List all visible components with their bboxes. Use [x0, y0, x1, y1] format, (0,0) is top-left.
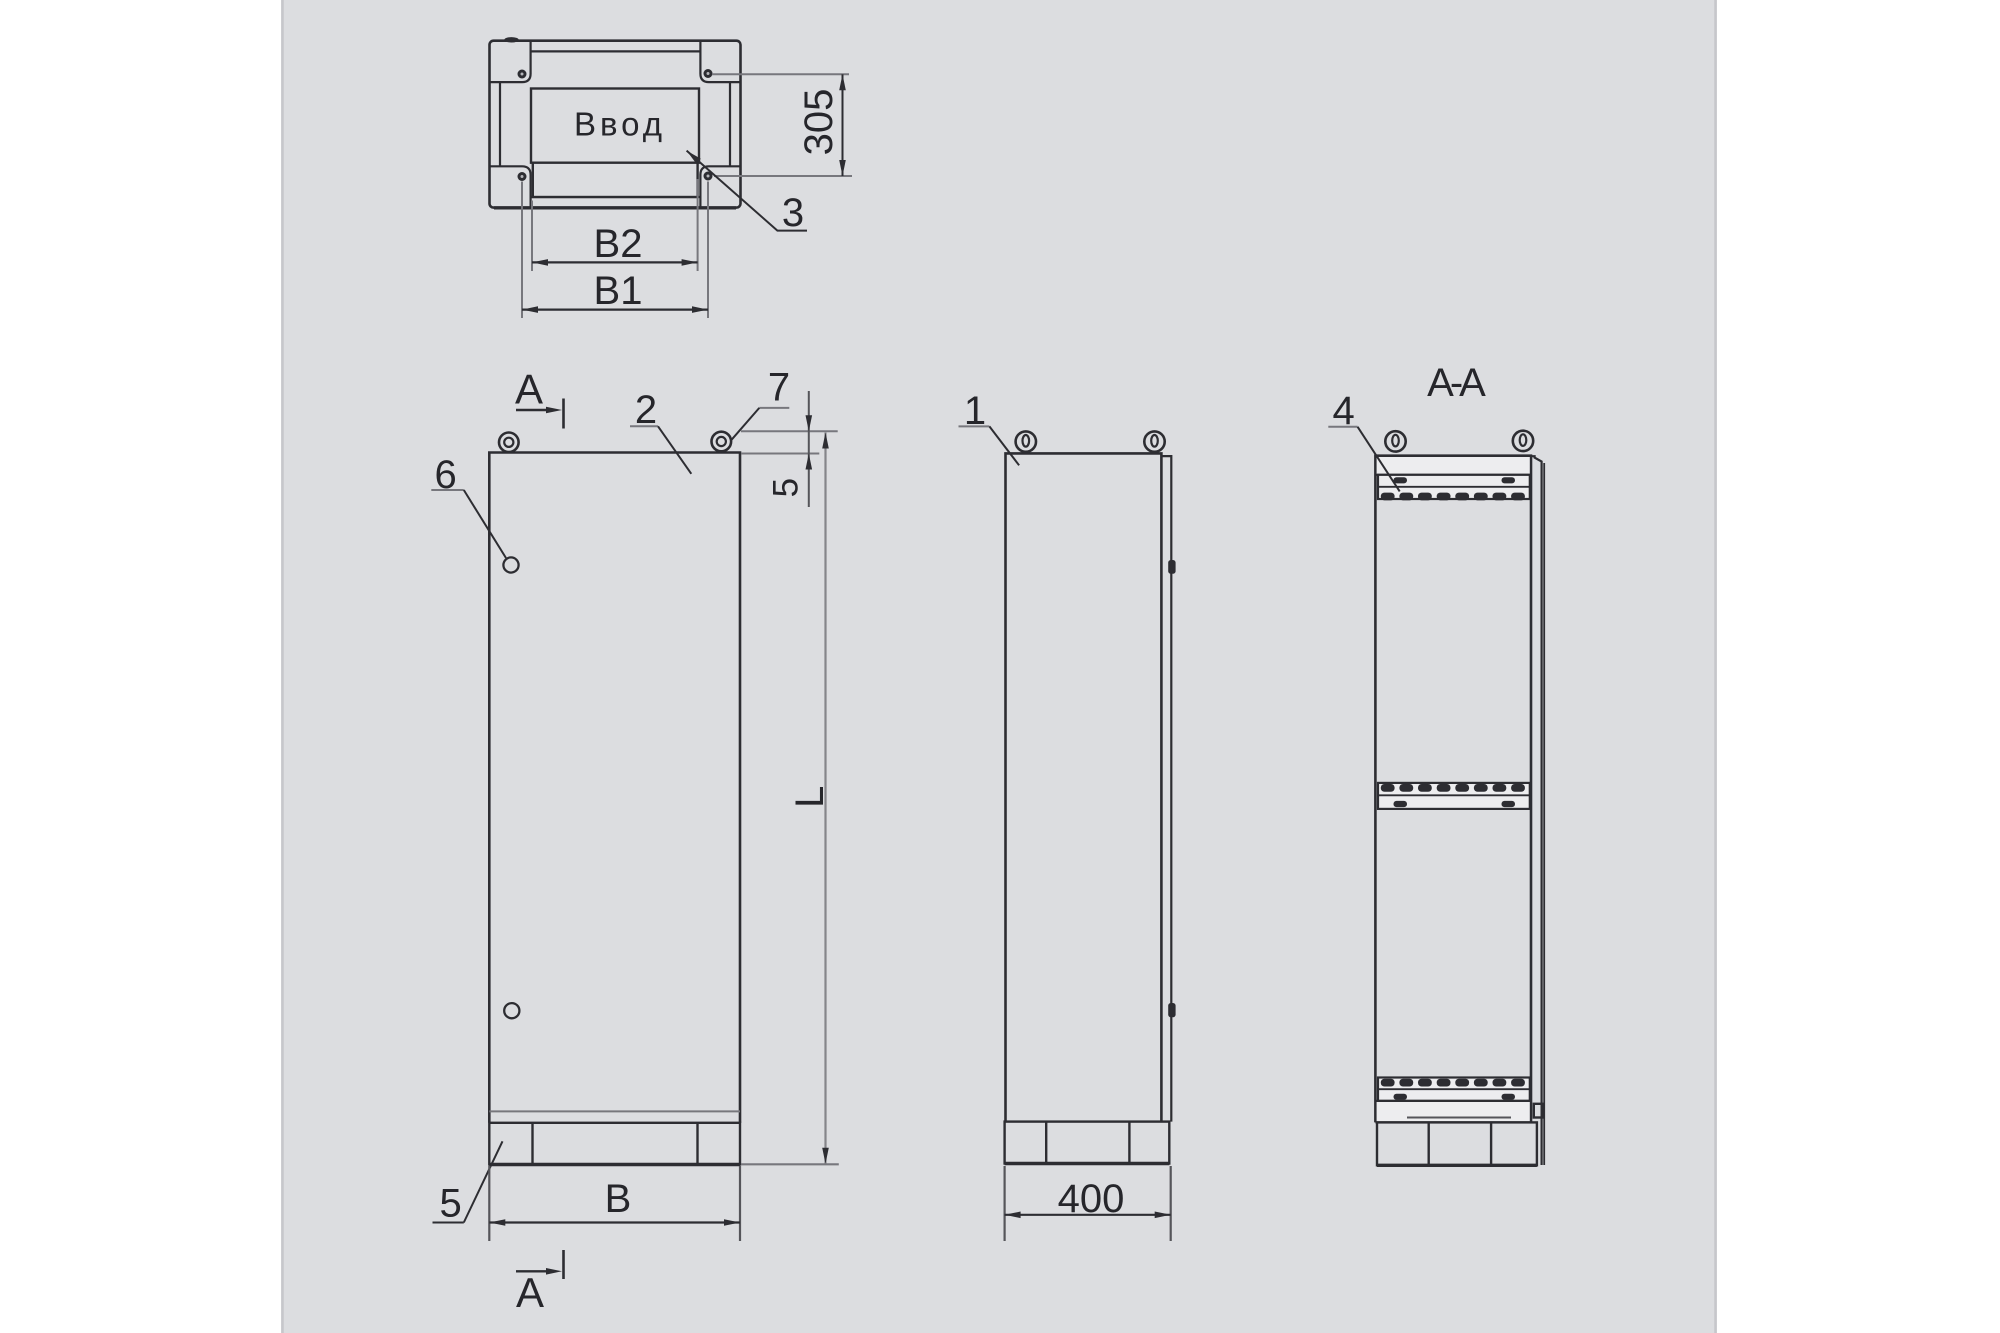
- svg-text:Ввод: Ввод: [574, 106, 666, 143]
- svg-text:6: 6: [434, 453, 456, 497]
- svg-text:B1: B1: [594, 269, 643, 313]
- svg-text:2: 2: [635, 388, 657, 432]
- svg-text:400: 400: [1058, 1177, 1125, 1221]
- svg-text:A: A: [516, 1269, 544, 1316]
- svg-text:A: A: [515, 366, 543, 413]
- svg-text:3: 3: [782, 191, 804, 235]
- svg-text:A-A: A-A: [1427, 361, 1486, 405]
- svg-text:7: 7: [768, 366, 790, 410]
- svg-text:4: 4: [1332, 389, 1354, 433]
- svg-text:B: B: [605, 1177, 632, 1221]
- svg-text:5: 5: [439, 1182, 461, 1226]
- svg-text:L: L: [788, 786, 832, 808]
- svg-text:1: 1: [964, 389, 986, 433]
- svg-text:305: 305: [797, 89, 841, 156]
- svg-text:B2: B2: [594, 222, 643, 266]
- svg-text:5: 5: [766, 478, 805, 497]
